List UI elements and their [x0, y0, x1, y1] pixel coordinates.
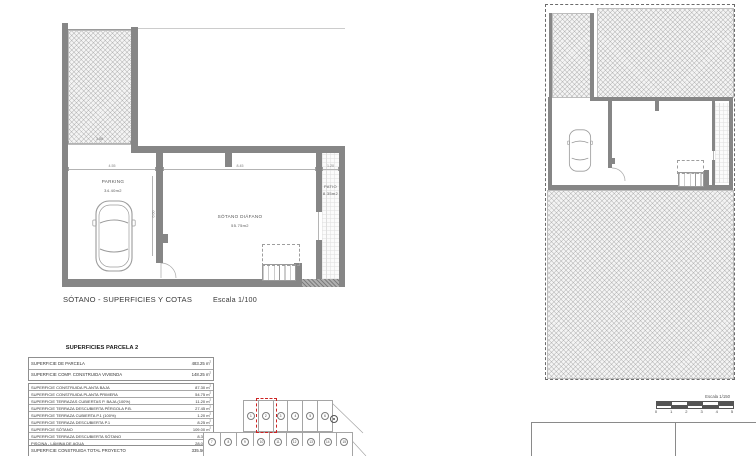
patio-opening-line — [318, 212, 319, 240]
parcel-number: 14 — [324, 438, 332, 446]
parcel-number: 6 — [321, 412, 329, 420]
parcel-number: 9 — [241, 438, 249, 446]
dim-patio-width: 1.20 — [327, 164, 334, 168]
patio-tile-area — [322, 153, 339, 279]
parcel-cell: 7 — [204, 433, 220, 446]
stairs-projection-dashed — [262, 244, 300, 266]
scale-bar-tick-label: 3 — [700, 409, 702, 414]
parcel-number: 12 — [291, 438, 299, 446]
titleblock-top-line — [531, 422, 756, 423]
surfaces-table-detail-box: SUPERFICIE CONSTRUIDA PLANTA BAJA87.30 m… — [28, 383, 214, 447]
dim-tick — [322, 167, 323, 171]
patio-room-label: PATIO — [324, 184, 337, 189]
parking-room-label: PARKING — [102, 179, 124, 184]
key-plan-marker-dot — [333, 418, 335, 420]
drawing-sheet: 4.55 8.45 1.20 3.88 6.60 PARKING 34.40m2… — [0, 0, 756, 456]
table-row-label: SUPERFICIE CONSTRUIDA PLANTA PRIMERA — [31, 392, 118, 397]
dim-tick — [68, 141, 69, 145]
table-row: SUPERFICIE TERRAZA DESCUBIERTA PÉRGOLA P… — [29, 404, 213, 411]
table-row-value: 8.25 m2 — [197, 420, 211, 425]
dim-sotano-depth: 6.60 — [152, 211, 156, 218]
scale-bar-segment — [657, 402, 671, 405]
parcel-number: 8 — [224, 438, 232, 446]
dim-line-parking — [68, 169, 156, 170]
table-row-label: SUPERFICIE TERRAZA CUBIERTA P.1 (100%) — [31, 413, 116, 418]
table-row: SUPERFICIE TERRAZAS CUBIERTAS P. BAJA (1… — [29, 397, 213, 404]
site-patio-opening-line — [713, 151, 714, 160]
parcel-cell: 13 — [302, 433, 319, 446]
site-right-wall — [729, 97, 733, 190]
site-car-top-view — [567, 128, 593, 173]
parcel-number: 15 — [340, 438, 348, 446]
site-patio-tiles — [715, 103, 729, 183]
parcel-cell: 4 — [287, 401, 302, 431]
table-row-value: 54.75 m2 — [195, 392, 211, 397]
dim-tick — [68, 167, 69, 171]
dim-sotano-width: 8.45 — [237, 164, 244, 168]
scale-bar-tick-label: 0 — [655, 409, 657, 414]
scale-bar-tick-label: 5 — [731, 409, 733, 414]
dim-parking-width: 4.55 — [109, 164, 116, 168]
parcel-number: 11 — [274, 438, 282, 446]
site-ramp-left-wall — [549, 13, 552, 97]
parcel-cell: 14 — [319, 433, 336, 446]
site-stairs — [678, 172, 704, 187]
table-row-label: SUPERFICIE SÓTANO — [31, 427, 73, 432]
garage-door-line — [68, 29, 131, 30]
parcel-cell: 11 — [269, 433, 286, 446]
dim-tick — [163, 167, 164, 171]
sotano-room-area: 55.75m2 — [231, 223, 249, 228]
parcel-cell: 12 — [286, 433, 303, 446]
parcel-cell: 5 — [302, 401, 317, 431]
site-stairs-dashed — [677, 160, 704, 174]
ramp-hatch-area — [68, 30, 133, 145]
table-row-label: SUPERFICIE TERRAZAS CUBIERTAS P. BAJA (1… — [31, 399, 130, 404]
table-row-label: SUPERFICIE DE PARCELA — [31, 361, 85, 366]
ramp-right-wall — [131, 27, 138, 146]
patio-room-area: 8.35m2 — [323, 191, 338, 196]
terrain-hatch-upper — [597, 8, 734, 98]
parking-room-area: 34.40m2 — [104, 188, 122, 193]
key-plan-bottom-row: 789101112131415 — [203, 432, 353, 456]
dim-tick — [130, 141, 131, 145]
top-wall — [131, 146, 345, 153]
table-row: SUPERFICIE CONSTRUIDA TOTAL PROYECTO335.… — [29, 446, 213, 456]
key-plan-marker-icon — [330, 415, 338, 423]
dim-tick — [338, 167, 339, 171]
site-ramp-right-wall — [590, 13, 594, 101]
plan-scale-label: Escala 1/100 — [213, 295, 257, 304]
table-row-label: SUPERFICIE CONSTRUIDA TOTAL PROYECTO — [31, 448, 126, 453]
table-row: SUPERFICIE TERRAZA DESCUBIERTA SÓTANO8.3… — [29, 432, 213, 439]
table-row-value: 27.45 m2 — [195, 406, 211, 411]
scale-bar-tick-label: 4 — [716, 409, 718, 414]
scale-bar-segment — [718, 402, 733, 405]
table-row: SUPERFICIE CONSTRUIDA PLANTA PRIMERA54.7… — [29, 390, 213, 397]
parcel-cell: 10 — [253, 433, 270, 446]
upper-floor-projection-line — [138, 28, 345, 29]
scale-bar-row-top — [657, 402, 733, 405]
table-row-label: SUPERFICIE CONSTRUIDA PLANTA BAJA — [31, 385, 110, 390]
dim-line-ramp — [68, 143, 131, 144]
divider-wall-pilaster — [163, 234, 168, 243]
table-row-label: SUPERFICIE TERRAZA DESCUBIERTA SÓTANO — [31, 434, 121, 439]
basement-stairs — [262, 264, 296, 281]
plan-title: SÓTANO - SUPERFICIES Y COTAS — [63, 295, 192, 304]
dim-ramp-width: 3.88 — [96, 137, 103, 141]
titleblock-left-line — [531, 422, 532, 456]
parcel-number: 7 — [208, 438, 216, 446]
scale-bar-tick-label: 1 — [670, 409, 672, 414]
site-top-wall-stub — [655, 101, 659, 111]
right-exterior-wall — [339, 146, 345, 287]
site-left-wall — [548, 97, 552, 190]
parcel-cell: 15 — [336, 433, 353, 446]
site-ramp-hatch — [552, 13, 592, 98]
ramp-left-wall — [62, 23, 68, 147]
parcel-number: 10 — [257, 438, 265, 446]
table-row-value: 483.25 m2 — [192, 361, 211, 366]
site-bottom-wall — [548, 185, 733, 190]
scale-bar-segment — [687, 402, 702, 405]
parcel-number: 3 — [277, 412, 285, 420]
scale-bar-segment — [702, 402, 717, 405]
terrain-hatch-lower — [547, 190, 734, 379]
table-row-value: 87.30 m2 — [195, 385, 211, 390]
table-row: SUPERFICIE DE PARCELA483.25 m2 — [29, 358, 213, 369]
site-divider-pilaster — [612, 158, 615, 164]
top-wall-stub — [225, 153, 232, 167]
parcel-number: 5 — [306, 412, 314, 420]
sotano-room-label: SÓTANO DIÁFANO — [218, 214, 263, 219]
parcel-number: 4 — [291, 412, 299, 420]
site-stair-side-wall — [704, 170, 709, 185]
surfaces-table-parcel-box: SUPERFICIE DE PARCELA483.25 m2SUPERFICIE… — [28, 357, 214, 381]
table-row: SUPERFICIE COMP. CONSTRUIDA VIVIENDA148.… — [29, 369, 213, 381]
dim-line-sotano — [163, 169, 316, 170]
site-scale-label: Escala 1/150 — [666, 394, 730, 399]
table-row-label: SUPERFICIE TERRAZA DESCUBIERTA P.1 — [31, 420, 110, 425]
parcel-number: 1 — [247, 412, 255, 420]
table-row-value: 1.20 m2 — [197, 413, 211, 418]
dim-tick — [155, 167, 156, 171]
parcel-cell: 8 — [220, 433, 237, 446]
table-row-value: 148.25 m2 — [192, 372, 211, 377]
table-row: SUPERFICIE TERRAZA DESCUBIERTA P.18.25 m… — [29, 418, 213, 425]
scale-bar-numbers: 012345 — [656, 409, 732, 415]
table-row-label: SUPERFICIE TERRAZA DESCUBIERTA PÉRGOLA P… — [31, 406, 132, 411]
table-row-value: 11.20 m2 — [195, 399, 211, 404]
scale-bar-segment — [671, 402, 686, 405]
surfaces-table-total-box: SUPERFICIE CONSTRUIDA TOTAL PROYECTO335.… — [28, 445, 214, 456]
parking-divider-wall — [156, 153, 163, 263]
parcel-highlight — [256, 398, 277, 433]
parcel-number: 13 — [307, 438, 315, 446]
dim-tick — [315, 167, 316, 171]
table-row: SUPERFICIE SÓTANO109.00 m2 — [29, 425, 213, 432]
car-top-view — [92, 199, 136, 273]
parcel-cell: 9 — [236, 433, 253, 446]
table-row: SUPERFICIE TERRAZA CUBIERTA P.1 (100%)1.… — [29, 411, 213, 418]
scale-bar-tick-label: 2 — [685, 409, 687, 414]
surfaces-table-title: SUPERFICIES PARCELA 2 — [28, 345, 176, 351]
dim-line-patio — [322, 169, 339, 170]
titleblock-divider-line — [675, 422, 676, 456]
table-row-label: SUPERFICIE COMP. CONSTRUIDA VIVIENDA — [31, 372, 122, 377]
